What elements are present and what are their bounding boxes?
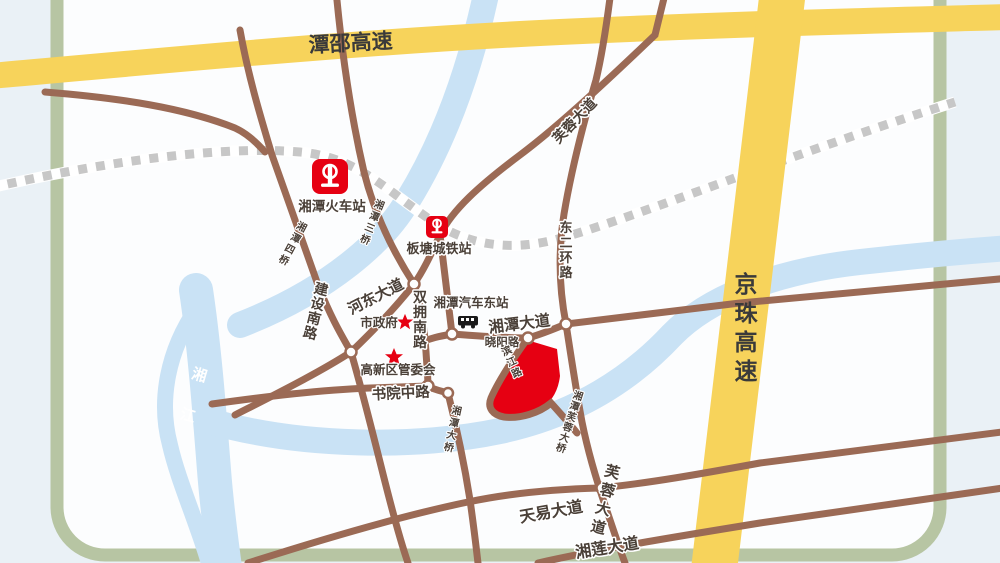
bus-wheel: [471, 325, 475, 329]
label-tanshao-expressway: 潭邵高速: [308, 29, 393, 57]
xiangtan-railway-station-marker: [312, 159, 348, 194]
label-shuangyong-road: 双拥南路: [413, 289, 428, 350]
bus-window: [461, 318, 464, 321]
bus-window: [466, 318, 469, 321]
bantang-station-marker: [426, 216, 448, 238]
label-bus-station: 湘潭汽车东站: [433, 295, 509, 310]
junction-dot: [447, 329, 458, 340]
label-bantang-station: 板塘城铁站: [406, 241, 471, 256]
bus-window: [471, 318, 474, 321]
label-dongerhuan-road: 东二环路: [559, 220, 573, 280]
junction-dot: [409, 279, 420, 290]
label-hitech-committee: 高新区管委会: [360, 362, 436, 377]
railway-logo-rail: [321, 184, 339, 187]
junction-dot: [561, 319, 572, 330]
map-canvas: 潭邵高速 京珠高速 湘潭火车站 板塘城铁站 湘潭汽车东站 湘潭大道 晓阳路 河东…: [0, 0, 1000, 563]
junction-dot: [346, 347, 357, 358]
map-container: 潭邵高速 京珠高速 湘潭火车站 板塘城铁站 湘潭汽车东站 湘潭大道 晓阳路 河东…: [0, 0, 1000, 563]
railway-logo-stem: [328, 166, 332, 185]
label-city-government: 市政府: [360, 315, 398, 330]
junction-dot: [523, 333, 534, 344]
junction-dot: [443, 388, 453, 398]
railway-logo-rail: [432, 231, 443, 233]
label-railway-station: 湘潭火车站: [298, 198, 366, 214]
railway-logo-stem: [436, 221, 439, 233]
bus-wheel: [461, 325, 465, 329]
